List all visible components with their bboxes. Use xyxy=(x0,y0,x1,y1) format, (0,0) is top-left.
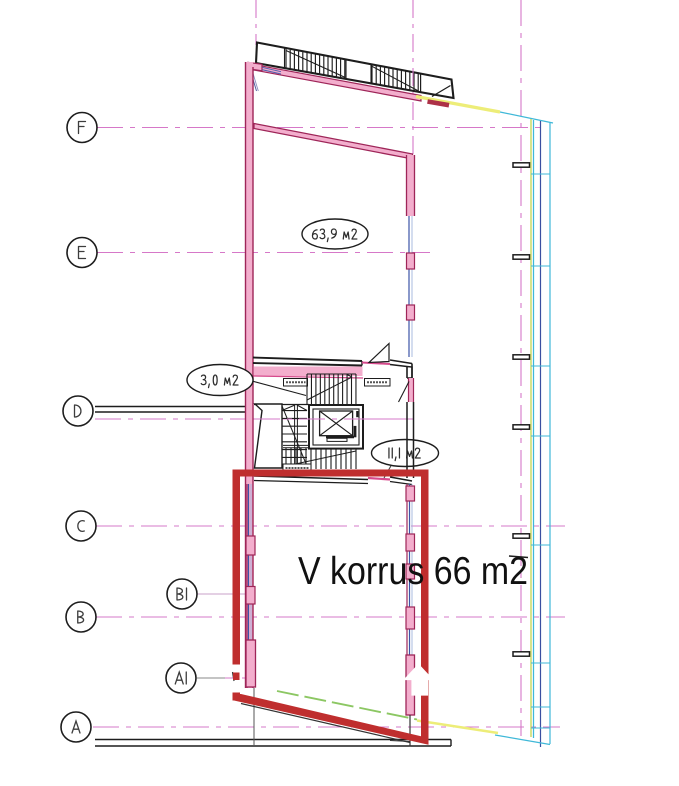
svg-text:V korrus 66 m2: V korrus 66 m2 xyxy=(298,550,528,593)
